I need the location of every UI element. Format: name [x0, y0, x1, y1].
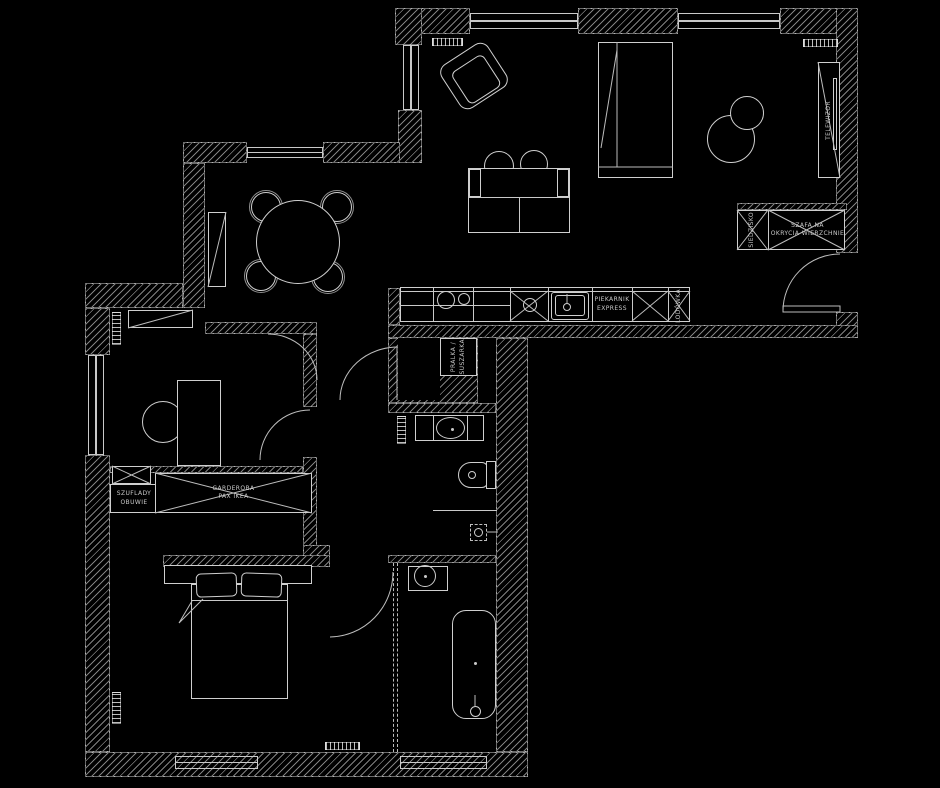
wall-corridor-upper — [303, 334, 317, 407]
sliding-partition — [393, 563, 398, 752]
armchair-seat — [450, 53, 503, 106]
shoe-cabinet-top — [112, 466, 151, 484]
window-living-2 — [678, 13, 780, 29]
vanity-divider — [433, 416, 434, 440]
desk — [177, 380, 221, 466]
sofa-armrest-right — [557, 169, 569, 197]
window-living-1 — [470, 13, 578, 29]
vanity-divider — [467, 416, 468, 440]
radiator-bedroom-bottom — [325, 742, 360, 750]
wall-bath1-top — [388, 403, 496, 413]
armchair — [436, 39, 511, 113]
vanity-drain-dot — [451, 428, 454, 431]
bath-sink-dot — [424, 575, 427, 578]
bed-headboard — [164, 565, 312, 584]
corner-cabinet-knob — [523, 298, 537, 312]
pillow — [196, 572, 238, 597]
hob-burner-small — [458, 293, 470, 305]
floor-plan: TELEWIZOR SIEDZISKO SZAFA NA OKRYCIA WIE… — [0, 0, 940, 788]
counter-mid-line — [400, 305, 510, 306]
toilet-tank — [486, 461, 496, 489]
wall-coat-wardrobe-top — [737, 203, 847, 210]
office-door-arc — [260, 410, 310, 460]
label-coat-wardrobe: SZAFA NA OKRYCIA WIERZCHNIE — [770, 210, 845, 250]
door-niche — [398, 338, 440, 400]
bed-living — [598, 42, 673, 178]
kitchen-faucet — [563, 303, 571, 311]
sofa-armrest-left — [469, 169, 481, 197]
label-washer: PRALKA / SUSZARKA — [440, 338, 477, 376]
window-bedroom — [175, 756, 258, 769]
radiator-office — [112, 312, 121, 345]
window-living-left — [403, 45, 419, 110]
window-dining — [247, 147, 323, 158]
bed — [191, 584, 288, 699]
shower-drain — [474, 528, 483, 537]
radiator-bedroom-left — [112, 692, 121, 724]
window-bathroom — [400, 756, 487, 769]
wall-living-left-lower — [398, 110, 422, 163]
dresser — [128, 310, 193, 328]
counter-divider — [632, 288, 633, 321]
pillow — [241, 572, 283, 597]
dining-table — [256, 200, 340, 284]
coat-wardrobe-divider — [768, 210, 769, 250]
counter-divider — [510, 288, 511, 321]
label-shoe-drawers: SZUFLADY OBUWIE — [110, 484, 158, 513]
wall-living-left-upper — [395, 8, 422, 45]
toilet-drain — [468, 471, 476, 479]
wall-bath-divider — [388, 555, 496, 563]
label-seat: SIEDZISKO — [737, 210, 768, 250]
label-fridge: LODÓWKA — [668, 289, 690, 322]
shower-screen — [433, 510, 497, 511]
window-office — [88, 355, 104, 455]
entry-door-arc — [783, 254, 840, 311]
radiator-towel-bathroom — [397, 416, 406, 444]
radiator-living-1 — [432, 38, 463, 46]
bathtub-drain — [470, 706, 481, 717]
wall-top-mid — [578, 8, 678, 34]
dining-cabinet — [208, 212, 226, 287]
wall-kitchen-south — [388, 325, 858, 338]
bathtub-dot — [474, 662, 477, 665]
wall-dining-top-right — [323, 142, 400, 163]
label-wardrobe-pax: GARDEROBA PAX IKEA — [155, 473, 312, 513]
wall-dining-left — [183, 163, 205, 308]
wall-right-lower — [496, 338, 528, 752]
label-oven: PIEKARNIK EXPRESS — [592, 288, 632, 321]
wall-left-upper — [85, 308, 110, 355]
pouf-small — [730, 96, 764, 130]
wall-dining-top-left — [183, 142, 247, 163]
hob-burner-large — [437, 291, 455, 309]
label-tv: TELEWIZOR — [818, 62, 840, 178]
wall-left-lower — [85, 455, 110, 752]
bedroom-door-arc — [330, 572, 393, 637]
entry-door-leaf — [783, 306, 840, 312]
wall-kitchen-end — [388, 288, 400, 325]
sofa-seat-divider — [519, 197, 520, 232]
radiator-living-2 — [803, 39, 838, 47]
wall-office-step — [85, 283, 183, 308]
blanket-edge — [191, 600, 288, 601]
wall-dining-corridor — [205, 322, 317, 334]
counter-divider — [473, 288, 474, 321]
counter-divider — [433, 288, 434, 321]
counter-divider — [548, 288, 549, 321]
